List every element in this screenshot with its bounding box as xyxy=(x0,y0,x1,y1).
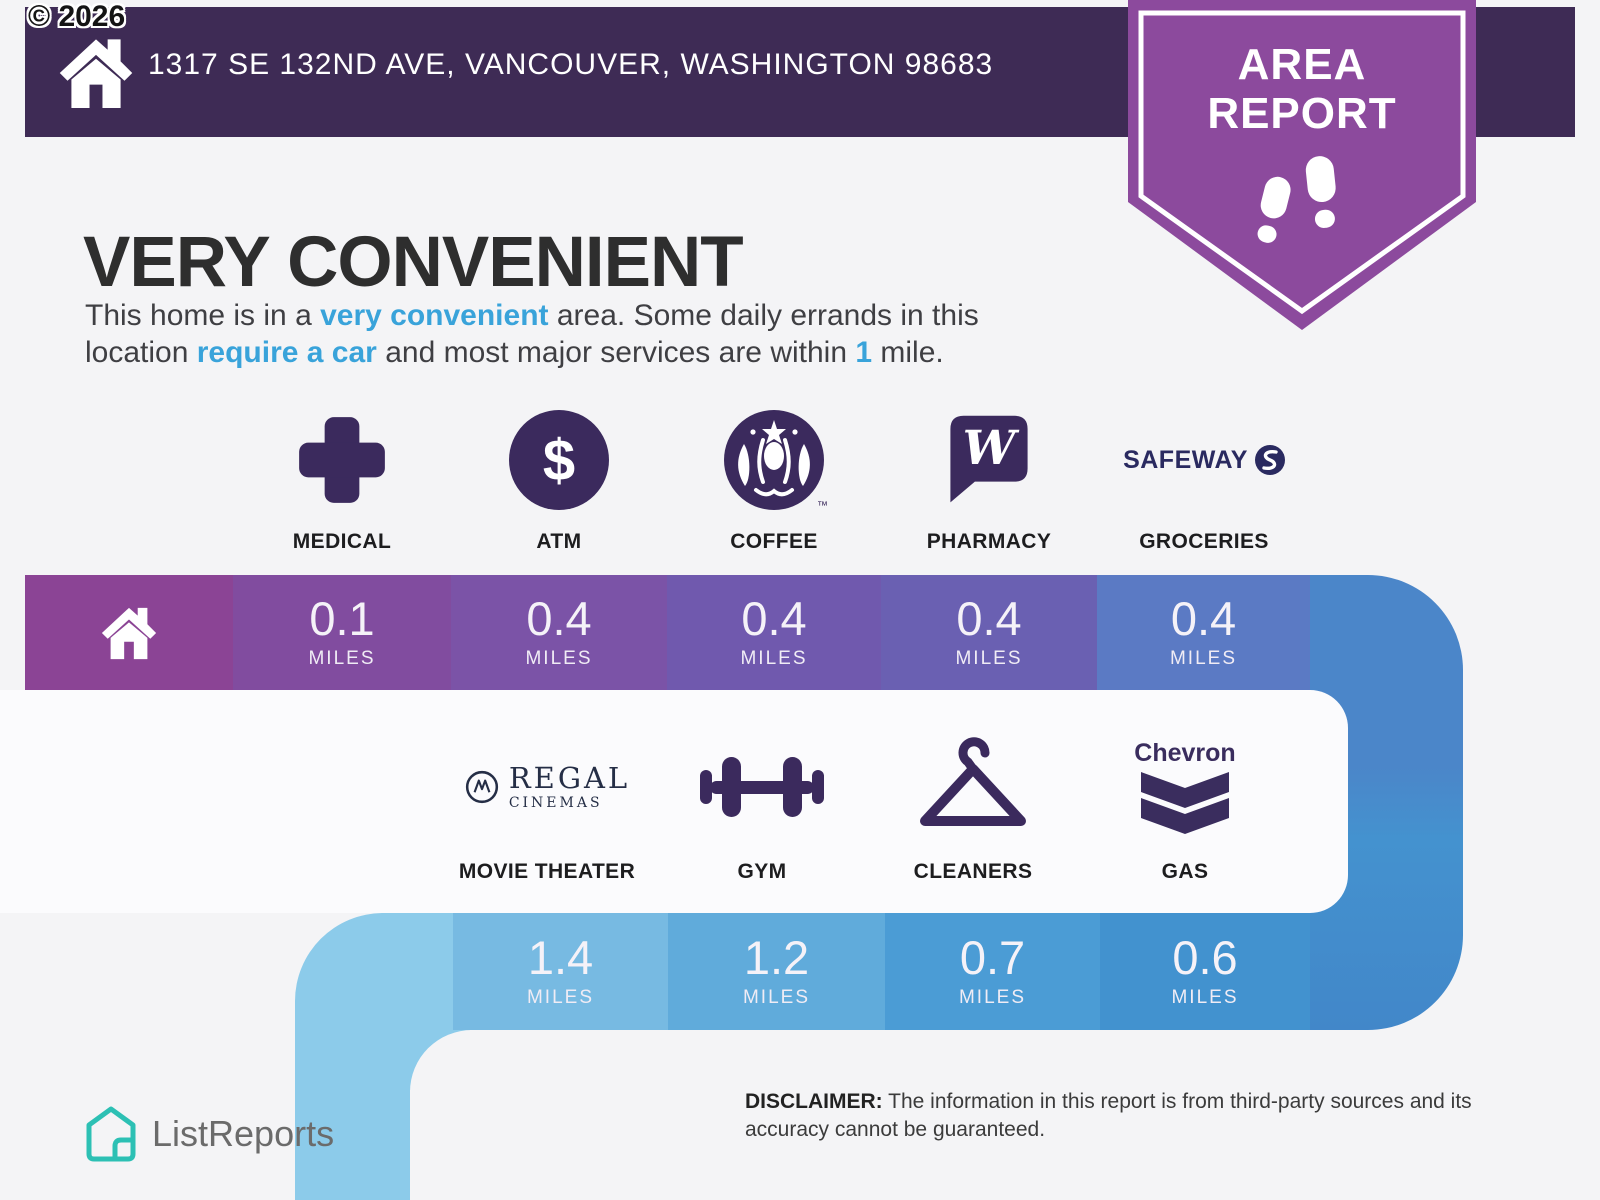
amenity-label: COFFEE xyxy=(730,530,818,554)
listreports-logo: ListReports xyxy=(84,1104,334,1164)
chevron-logo-icon: Chevron xyxy=(1134,739,1235,836)
regal-wordmark: REGAL xyxy=(509,764,630,793)
distance-unit: MILES xyxy=(955,648,1022,670)
amenity-label: ATM xyxy=(536,530,581,554)
amenity-label: PHARMACY xyxy=(927,530,1052,554)
safeway-logo-icon: SAFEWAY xyxy=(1123,445,1285,475)
badge-line2: REPORT xyxy=(1128,89,1476,138)
distance-cell-groceries: 0.4 MILES xyxy=(1097,575,1310,690)
clothes-hanger-icon xyxy=(915,737,1031,837)
property-address: 1317 SE 132ND AVE, VANCOUVER, WASHINGTON… xyxy=(148,0,993,130)
badge-line1: AREA xyxy=(1128,40,1476,89)
regal-emblem-icon xyxy=(464,769,500,805)
walgreens-w-icon: W xyxy=(941,409,1037,511)
amenity-label: MEDICAL xyxy=(293,530,391,554)
distance-cell-gas: 0.6 MILES xyxy=(1100,913,1310,1030)
medical-cross-icon xyxy=(293,411,391,509)
walkability-description: This home is in a very convenient area. … xyxy=(85,297,1105,371)
distance-value: 0.6 xyxy=(1172,934,1237,981)
chevron-stripes-icon xyxy=(1141,772,1229,836)
distance-cell-movie-theater: 1.4 MILES xyxy=(453,913,668,1030)
amenity-label: GYM xyxy=(737,860,786,884)
amenity-coffee: ™ COFFEE xyxy=(664,402,884,554)
desc-text: area. Some daily errands in this xyxy=(549,299,979,332)
svg-text:W: W xyxy=(963,421,1020,476)
distance-value: 0.7 xyxy=(960,934,1025,981)
distance-unit: MILES xyxy=(1171,987,1238,1009)
distance-unit: MILES xyxy=(959,987,1026,1009)
distance-unit: MILES xyxy=(1170,648,1237,670)
desc-text: location xyxy=(85,336,197,369)
chevron-wordmark: Chevron xyxy=(1134,739,1235,768)
regal-subtext: CINEMAS xyxy=(509,795,630,811)
badge-title: AREA REPORT xyxy=(1128,40,1476,139)
desc-text: This home is in a xyxy=(85,299,320,332)
desc-highlight-mile: 1 xyxy=(855,336,872,369)
amenity-cleaners: CLEANERS xyxy=(863,726,1083,884)
listreports-wordmark: ListReports xyxy=(152,1113,334,1155)
amenity-pharmacy: W PHARMACY xyxy=(879,402,1099,554)
area-report-page: 1317 SE 132ND AVE, VANCOUVER, WASHINGTON… xyxy=(0,0,1600,1200)
distance-cell-medical: 0.1 MILES xyxy=(233,575,451,690)
dollar-circle-icon: $ xyxy=(509,410,609,510)
trademark-symbol: ™ xyxy=(817,500,828,512)
disclaimer-line2: accuracy cannot be guaranteed. xyxy=(745,1118,1045,1141)
safeway-s-emblem-icon xyxy=(1255,445,1285,475)
regal-cinemas-logo-icon: REGAL CINEMAS xyxy=(464,764,630,811)
distance-value: 1.2 xyxy=(744,934,809,981)
amenity-label: MOVIE THEATER xyxy=(459,860,635,884)
area-report-badge: AREA REPORT xyxy=(1128,0,1476,330)
desc-highlight-car: require a car xyxy=(197,336,377,369)
amenity-label: GROCERIES xyxy=(1139,530,1269,554)
distance-value: 1.4 xyxy=(528,934,593,981)
desc-text: mile. xyxy=(872,336,944,369)
desc-text: and most major services are within xyxy=(377,336,856,369)
safeway-wordmark: SAFEWAY xyxy=(1123,446,1248,475)
distance-cell-coffee: 0.4 MILES xyxy=(667,575,881,690)
amenity-label: GAS xyxy=(1162,860,1209,884)
dumbbell-icon xyxy=(696,749,828,825)
home-start-cell xyxy=(25,575,233,690)
disclaimer-label: DISCLAIMER: xyxy=(745,1090,883,1113)
amenity-gas: Chevron GAS xyxy=(1075,726,1295,884)
distance-cell-cleaners: 0.7 MILES xyxy=(885,913,1100,1030)
distance-unit: MILES xyxy=(308,648,375,670)
starbucks-siren-icon xyxy=(722,408,826,512)
dollar-sign: $ xyxy=(543,427,575,494)
distance-unit: MILES xyxy=(743,987,810,1009)
amenity-medical: MEDICAL xyxy=(232,402,452,554)
amenity-gym: GYM xyxy=(652,726,872,884)
distance-unit: MILES xyxy=(525,648,592,670)
distance-unit: MILES xyxy=(527,987,594,1009)
distance-value: 0.4 xyxy=(1171,595,1236,642)
distance-value: 0.4 xyxy=(956,595,1021,642)
distance-cell-pharmacy: 0.4 MILES xyxy=(881,575,1097,690)
distance-value: 0.4 xyxy=(526,595,591,642)
footprints-icon xyxy=(1242,146,1362,268)
distance-unit: MILES xyxy=(740,648,807,670)
home-icon xyxy=(52,29,140,117)
amenity-atm: $ ATM xyxy=(449,402,669,554)
desc-highlight-convenient: very convenient xyxy=(320,299,548,332)
disclaimer-text: DISCLAIMER: The information in this repo… xyxy=(745,1088,1565,1144)
amenity-label: CLEANERS xyxy=(914,860,1033,884)
page-title: VERY CONVENIENT xyxy=(83,222,743,303)
distance-value: 0.4 xyxy=(741,595,806,642)
amenity-groceries: SAFEWAY GROCERIES xyxy=(1094,402,1314,554)
distance-cell-gym: 1.2 MILES xyxy=(668,913,885,1030)
amenity-movie-theater: REGAL CINEMAS MOVIE THEATER xyxy=(437,726,657,884)
distance-cell-atm: 0.4 MILES xyxy=(451,575,667,690)
distance-value: 0.1 xyxy=(309,595,374,642)
copyright-text: © 2026 xyxy=(28,0,125,34)
home-icon xyxy=(96,603,162,663)
listreports-house-icon xyxy=(84,1104,138,1164)
disclaimer-line1: The information in this report is from t… xyxy=(883,1090,1472,1113)
